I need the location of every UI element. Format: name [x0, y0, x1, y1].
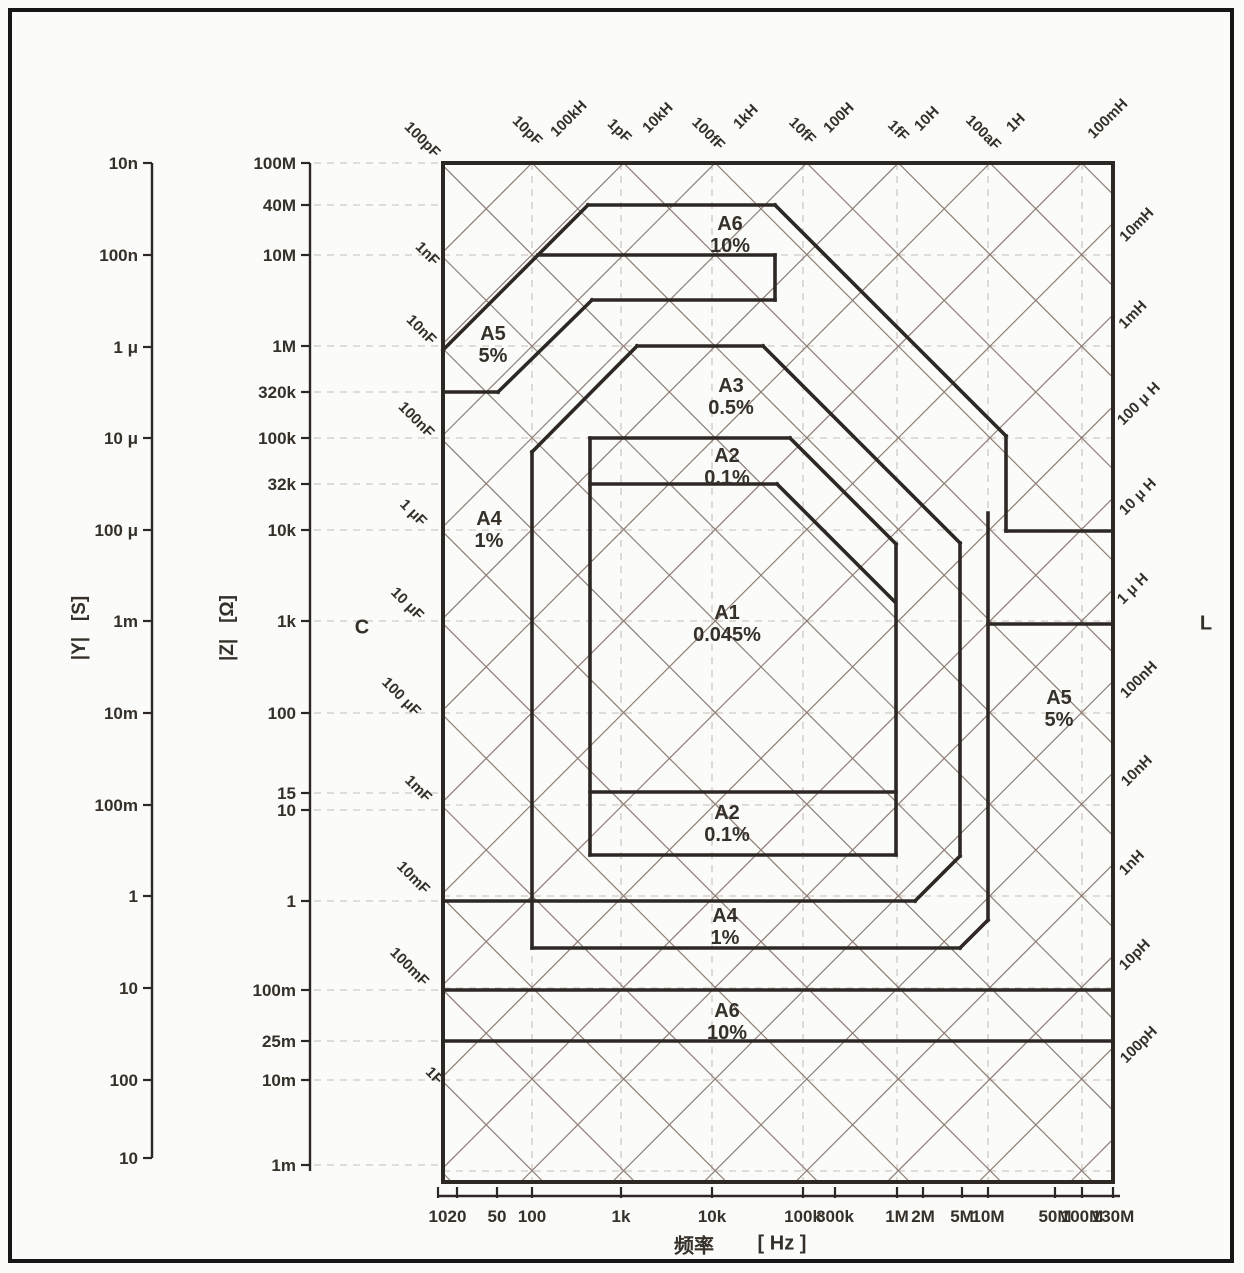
- inductance-gridline: [1082, 163, 1244, 1182]
- admittance-tick-label: 100 μ: [95, 521, 139, 540]
- frequency-tick-label: 300k: [816, 1207, 854, 1226]
- inductance-gridline: [0, 163, 1001, 1182]
- inductance-line-label: 100 μ H: [1114, 379, 1164, 429]
- impedance-tick-label: 100m: [253, 981, 296, 1000]
- impedance-tick-label: 1M: [272, 337, 296, 356]
- impedance-tick-label: 1m: [271, 1156, 296, 1175]
- capacitance-gridline: [63, 163, 1082, 1182]
- region-accuracy-A1: 0.045%: [693, 624, 761, 646]
- frequency-tick-label: 10: [429, 1207, 448, 1226]
- inductance-gridline: [0, 163, 727, 1182]
- inductance-line-label: 1H: [1003, 110, 1029, 136]
- inductance-gridline: [74, 163, 1093, 1182]
- impedance-tick-label: 32k: [268, 475, 297, 494]
- region-label-A6: A6: [714, 1000, 740, 1022]
- frequency-tick-label: 5M: [950, 1207, 974, 1226]
- impedance-tick-label: 1k: [277, 612, 296, 631]
- impedance-tick-label: 25m: [262, 1032, 296, 1051]
- impedance-tick-label: 100: [268, 704, 296, 723]
- inductance-gridline: [990, 163, 1244, 1182]
- impedance-tick-label: 40M: [263, 196, 296, 215]
- admittance-tick-label: 100: [110, 1071, 138, 1090]
- inductance-line-label: 100kH: [547, 97, 590, 140]
- region-label-A1: A1: [714, 602, 740, 624]
- impedance-tick-label: 10: [277, 801, 296, 820]
- frequency-tick-label: 130M: [1092, 1207, 1135, 1226]
- region-accuracy-A6: 10%: [710, 235, 750, 257]
- capacitance-gridline: [0, 163, 624, 1182]
- frequency-tick-label: 50: [488, 1207, 507, 1226]
- region-accuracy-A2: 0.1%: [704, 824, 750, 846]
- capacitance-line-label: 1pF: [604, 115, 635, 146]
- admittance-tick-label: 100m: [95, 796, 138, 815]
- region-label-A5: A5: [480, 323, 506, 345]
- capacitance-line-label: 10pF: [509, 112, 546, 149]
- admittance-tick-label: 10 μ: [104, 429, 138, 448]
- accuracy-boundary-segment: [960, 920, 988, 948]
- region-accuracy-A5: 5%: [1045, 709, 1074, 731]
- capacitance-gridline: [337, 163, 1244, 1182]
- frequency-tick-label: 100: [518, 1207, 546, 1226]
- inductance-gridline: [349, 163, 1244, 1182]
- region-label-A2: A2: [714, 802, 740, 824]
- region-label-A3: A3: [718, 375, 744, 397]
- capacitance-line-label: 10 μF: [387, 584, 427, 624]
- inductance-gridline: [0, 163, 635, 1182]
- capacitance-gridline: [0, 163, 898, 1182]
- capacitance-line-label: 1mF: [401, 772, 435, 806]
- capacitance-line-label: 100nF: [395, 398, 438, 441]
- frequency-tick-label: 20: [448, 1207, 467, 1226]
- capacitance-gridline: [0, 163, 532, 1182]
- capacitance-line-label: 10mF: [393, 858, 433, 898]
- capacitance-line-label: 1fF: [884, 117, 912, 145]
- impedance-accuracy-chart: 10n100n1 μ10 μ100 μ1m10m100m11010010100M…: [0, 0, 1244, 1273]
- accuracy-boundary-segment: [915, 856, 960, 901]
- inductance-line-label: 10mH: [1116, 204, 1157, 245]
- impedance-tick-label: 100M: [253, 154, 296, 173]
- inductance-line-label: 1nH: [1116, 847, 1148, 879]
- inductance-gridline: [0, 163, 452, 1182]
- inductance-line-label: 1 μ H: [1114, 570, 1152, 608]
- inductance-line-label: 10kH: [639, 99, 676, 136]
- capacitance-gridline: [0, 163, 807, 1182]
- admittance-axis-title: |Y| [S]: [69, 596, 91, 660]
- region-accuracy-A4: 1%: [711, 927, 740, 949]
- capacitance-line-label: 1 μF: [396, 496, 430, 530]
- inductance-gridline: [257, 163, 1244, 1182]
- impedance-tick-label: 100k: [258, 429, 296, 448]
- capacitance-gridline: [704, 163, 1244, 1182]
- admittance-tick-label: 10: [119, 979, 138, 998]
- frequency-tick-label: 1k: [612, 1207, 631, 1226]
- frequency-tick-label: 10M: [971, 1207, 1004, 1226]
- admittance-tick-label: 100n: [99, 246, 138, 265]
- inductance-line-label: 10nH: [1118, 752, 1156, 790]
- region-label-A2: A2: [714, 445, 740, 467]
- region-accuracy-A3: 0.5%: [708, 397, 754, 419]
- capacitance-gridline: [0, 163, 990, 1182]
- inductance-line-label: 1kH: [730, 101, 761, 132]
- accuracy-boundary-segment: [443, 205, 588, 350]
- inductance-line-label: 100pH: [1117, 1023, 1161, 1067]
- accuracy-boundary-segment: [777, 484, 895, 602]
- admittance-tick-label: 10: [119, 1149, 138, 1168]
- frequency-axis-unit: [ Hz ]: [758, 1233, 807, 1256]
- inductance-corner-label: L: [1200, 613, 1212, 636]
- inductance-line-label: 1mH: [1115, 297, 1150, 332]
- capacitance-corner-label: C: [355, 617, 369, 640]
- plot-border: [443, 163, 1113, 1182]
- impedance-axis-title: |Z| [Ω]: [217, 595, 239, 661]
- region-accuracy-A4: 1%: [475, 530, 504, 552]
- inductance-gridline: [807, 163, 1244, 1182]
- impedance-tick-label: 1: [287, 892, 296, 911]
- region-label-A6: A6: [717, 213, 743, 235]
- admittance-tick-label: 1 μ: [113, 338, 138, 357]
- region-accuracy-A5: 5%: [479, 345, 508, 367]
- inductance-gridline: [715, 163, 1244, 1182]
- accuracy-boundary-segment: [775, 205, 1006, 436]
- capacitance-line-label: 100aF: [962, 112, 1004, 154]
- frequency-tick-label: 1M: [885, 1207, 909, 1226]
- region-accuracy-A6: 10%: [707, 1022, 747, 1044]
- region-accuracy-A2: 0.1%: [704, 467, 750, 489]
- inductance-line-label: 10 μ H: [1116, 475, 1160, 519]
- capacitance-line-label: 100pF: [401, 118, 444, 161]
- impedance-tick-label: 10k: [268, 521, 297, 540]
- frequency-tick-label: 2M: [911, 1207, 935, 1226]
- capacitance-line-label: 100fF: [688, 114, 728, 154]
- impedance-tick-label: 10M: [263, 246, 296, 265]
- inductance-gridline: [166, 163, 1185, 1182]
- accuracy-boundary-segment: [763, 346, 960, 543]
- capacitance-gridline: [0, 163, 440, 1182]
- capacitance-line-label: 100mF: [386, 944, 432, 990]
- inductance-line-label: 100nH: [1117, 658, 1161, 702]
- capacitance-line-label: 1nF: [412, 238, 443, 269]
- plot-grid: [0, 163, 1244, 1182]
- inductance-line-label: 10pH: [1116, 936, 1154, 974]
- inductance-line-label: 100mH: [1084, 95, 1131, 142]
- admittance-tick-label: 10m: [104, 704, 138, 723]
- admittance-tick-label: 1m: [113, 612, 138, 631]
- capacitance-gridline: [154, 163, 1173, 1182]
- capacitance-line-label: 10fF: [785, 114, 819, 148]
- region-label-A4: A4: [476, 508, 502, 530]
- impedance-tick-label: 10m: [262, 1071, 296, 1090]
- frequency-tick-label: 10k: [698, 1207, 727, 1226]
- capacitance-gridline: [0, 163, 715, 1182]
- region-label-A5: A5: [1046, 687, 1072, 709]
- inductance-line-label: 10H: [911, 103, 942, 134]
- region-label-A4: A4: [712, 905, 738, 927]
- accuracy-chart-page: 10n100n1 μ10 μ100 μ1m10m100m11010010100M…: [0, 0, 1244, 1273]
- admittance-tick-label: 10n: [109, 154, 138, 173]
- inductance-gridline: [0, 163, 910, 1182]
- inductance-gridline: [0, 163, 543, 1182]
- frequency-axis-title: 频率: [674, 1230, 714, 1259]
- capacitance-line-label: 10nF: [403, 311, 440, 348]
- inductance-line-label: 100H: [820, 99, 857, 136]
- admittance-tick-label: 1: [129, 887, 138, 906]
- impedance-tick-label: 320k: [258, 383, 296, 402]
